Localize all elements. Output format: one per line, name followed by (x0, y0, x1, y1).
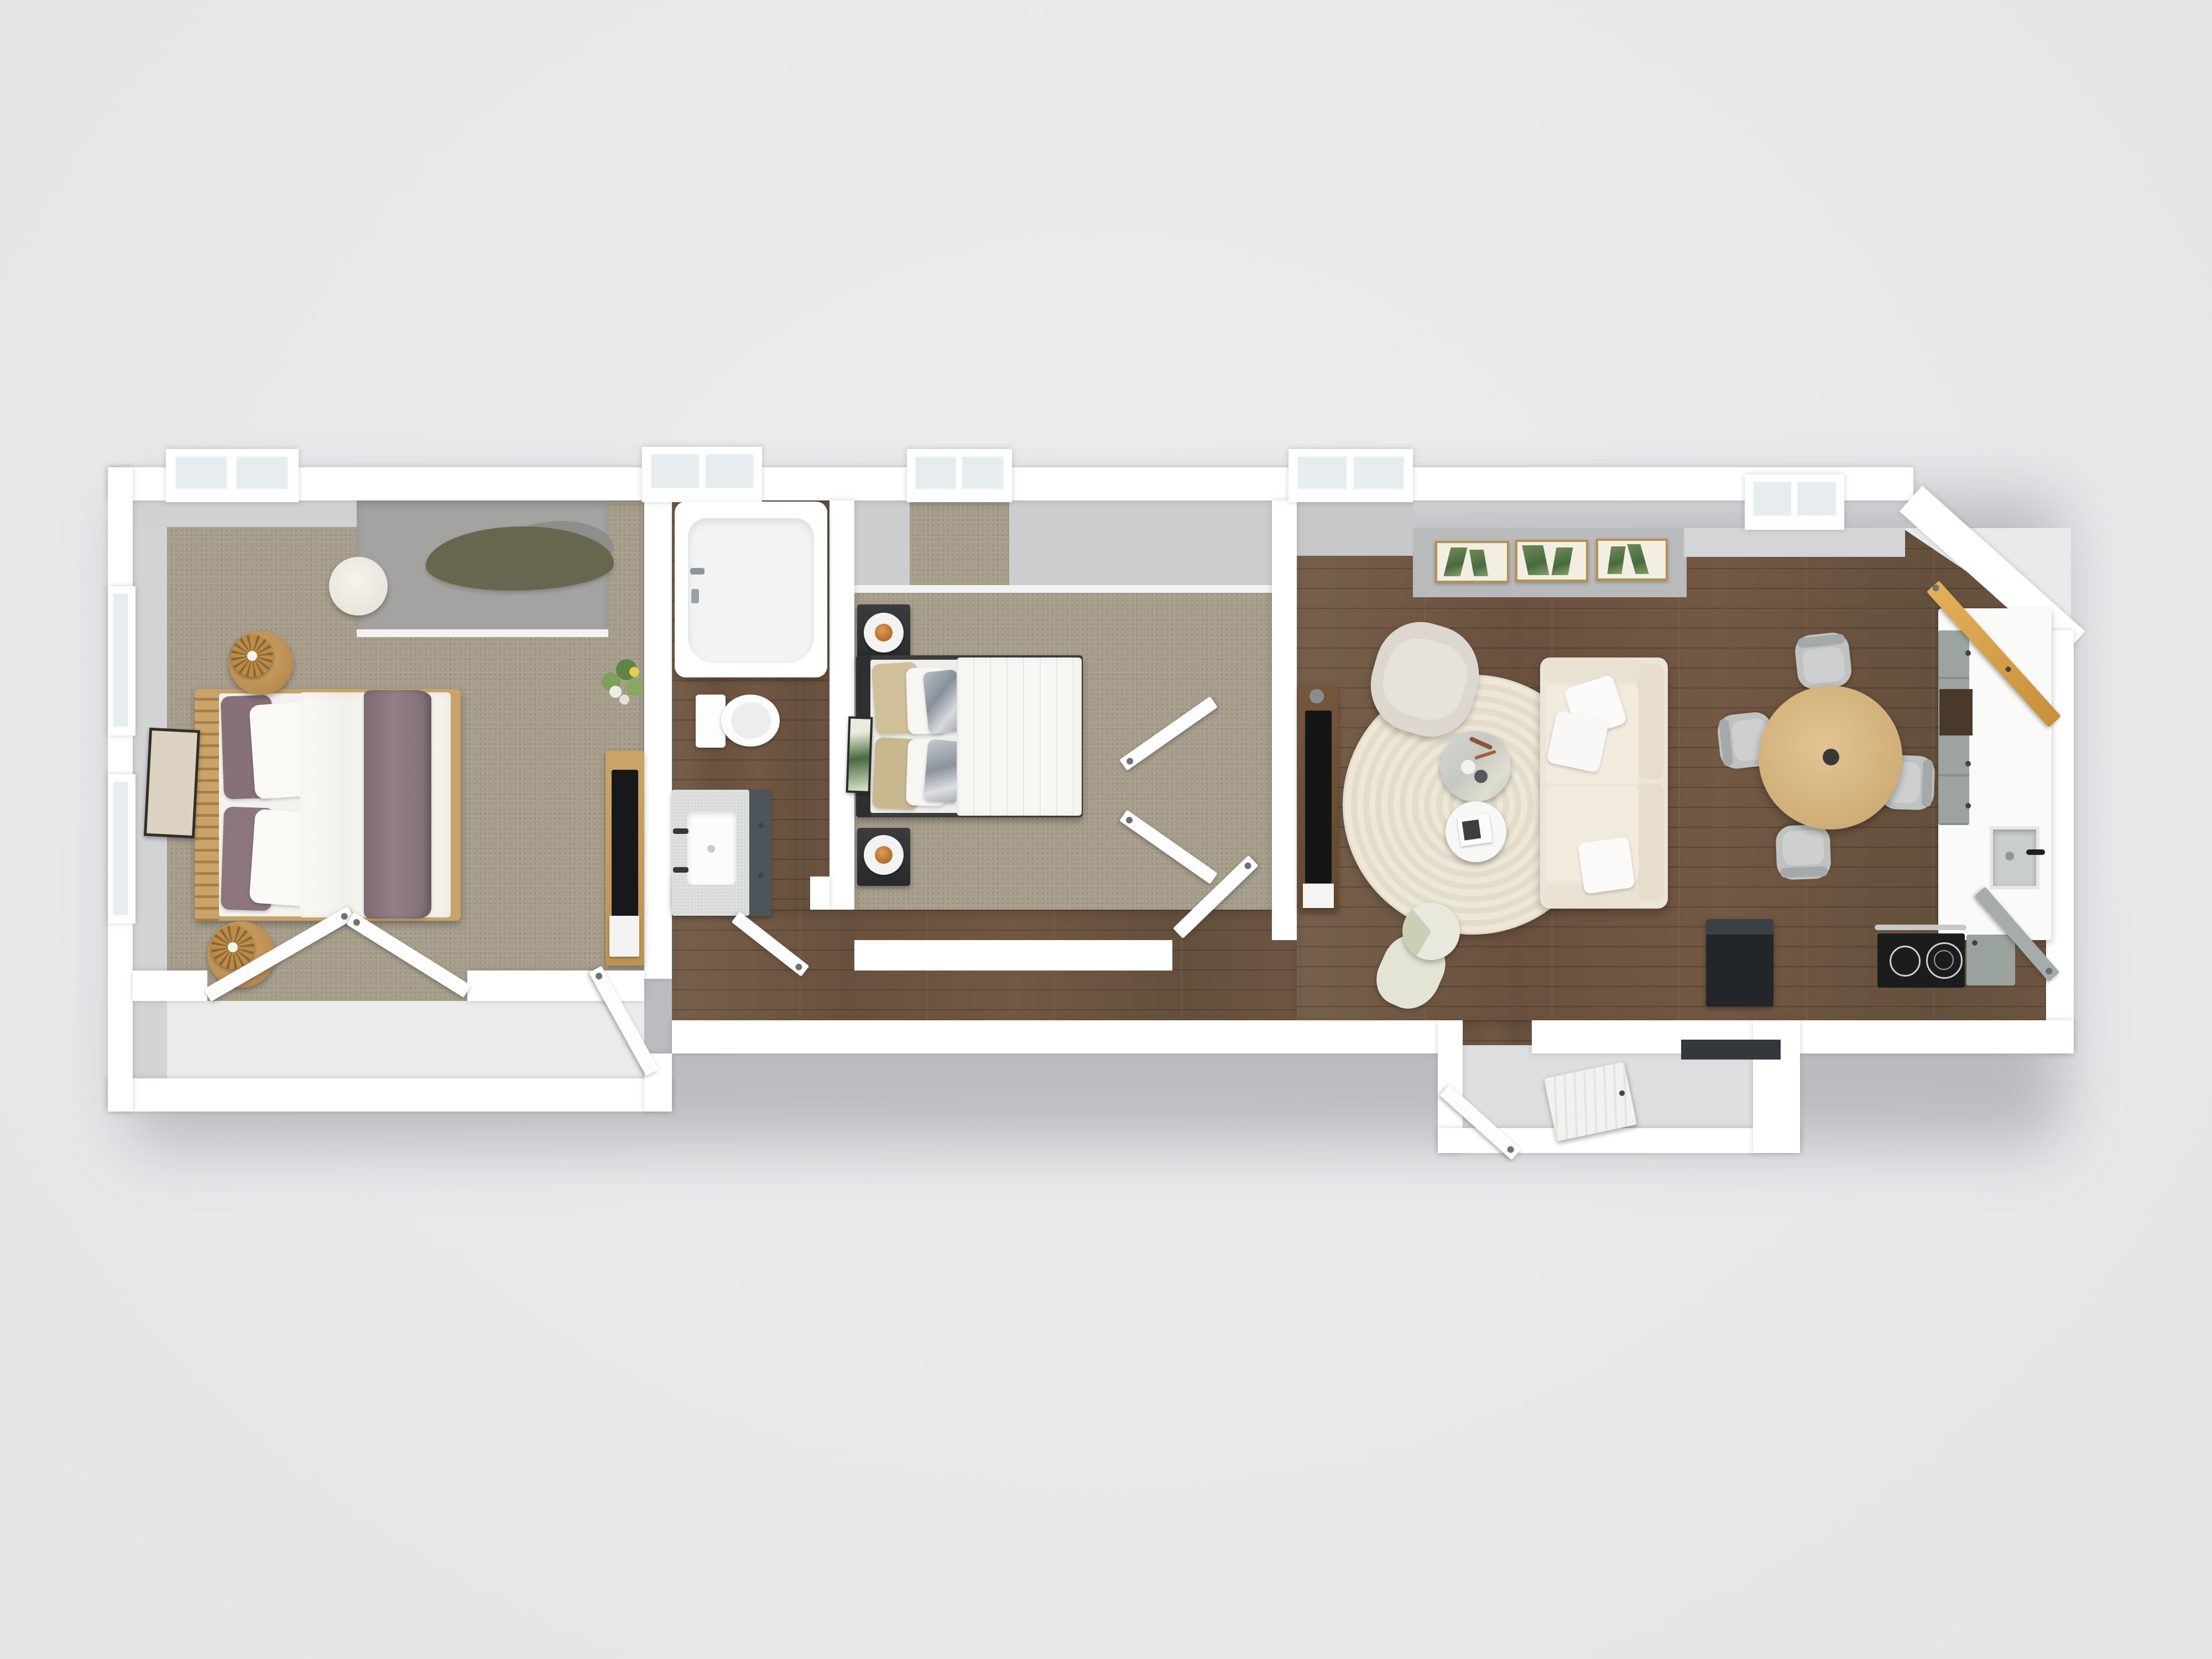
flower-white (619, 695, 629, 705)
burner (1890, 946, 1921, 977)
kitchen-top-wall-face (1684, 528, 1905, 557)
botanical-print (1596, 539, 1668, 581)
headboard-slats (195, 689, 219, 921)
window-pane (1751, 480, 1793, 518)
window-pane (111, 592, 130, 729)
magazine (609, 916, 639, 957)
window-pane (703, 452, 755, 490)
bedroom2-nook-baseboard (854, 585, 1272, 593)
cabinet-handle (758, 873, 764, 878)
leaf-art (1607, 546, 1625, 574)
dried-sprig (1474, 750, 1496, 760)
bath-faucet (690, 568, 705, 575)
cabinet-handle (1965, 761, 1971, 766)
bed-bedroom1 (195, 689, 461, 921)
leaf-art (1522, 545, 1549, 575)
tv-on-dresser (612, 770, 638, 920)
coffee-table-marble (1440, 731, 1511, 802)
living-bay-reveal (1297, 500, 1413, 556)
magazine-cover-photo (1462, 820, 1481, 841)
decor-vase (1310, 689, 1324, 703)
table-centerpiece (1823, 749, 1839, 765)
stove-cooktop (1877, 933, 1965, 988)
botanical-print (1515, 540, 1588, 582)
window-pane (174, 455, 229, 491)
cabinet-handle (1965, 650, 1971, 656)
leaning-art (144, 728, 200, 839)
rattan-lamp (211, 926, 254, 969)
window-bay-bedroom1 (166, 449, 299, 502)
wall-bottom-west (672, 1020, 1443, 1053)
wall-bottom-left-wing (108, 1078, 672, 1112)
quilted-duvet (957, 658, 1082, 816)
flower-white (609, 686, 622, 698)
window-bay-bedroom2 (907, 449, 1012, 502)
flower-yellow (629, 667, 639, 677)
window-bay-living (1288, 449, 1413, 502)
door-mat (1681, 1040, 1781, 1060)
bowl-lamp (864, 835, 904, 875)
wall-bathroom-bedroom2 (830, 500, 854, 910)
cabinet-handle (1965, 803, 1971, 808)
door-knob (1619, 1090, 1625, 1097)
nook-baseboard (357, 629, 608, 637)
leaf-art (1627, 544, 1648, 574)
throw-mauve (364, 690, 431, 919)
flower-leaf (626, 679, 643, 696)
window-bay-bathroom (642, 447, 762, 502)
dining-table (1759, 686, 1902, 830)
wall-bedroom2-bottom (854, 940, 1172, 971)
pillow-white (1546, 710, 1609, 773)
oven-panel (1939, 689, 1973, 735)
dining-chair (1793, 631, 1853, 691)
burner-inner (1934, 950, 1954, 970)
toilet-seat (731, 702, 771, 739)
kitchen-sink (1990, 826, 2039, 889)
stove-handle (1875, 925, 1966, 930)
wall-closet1-left (133, 971, 207, 1001)
bedroom2-wall-face-right (1009, 500, 1272, 592)
sofa (1540, 658, 1668, 909)
leaf-art (1552, 547, 1573, 575)
window-pane (960, 455, 1005, 491)
dried-sprig (1469, 736, 1493, 750)
vase-white (1461, 760, 1475, 774)
sink-drain (707, 845, 715, 853)
armchair-cushion (1376, 631, 1475, 728)
magazine (1457, 813, 1493, 847)
refrigerator (1706, 919, 1773, 1006)
window-left-lower (108, 774, 135, 924)
door-handle (2005, 665, 2012, 673)
sink-faucet (673, 828, 688, 834)
coffee-table-white (1446, 801, 1506, 862)
bed-bedroom2 (856, 655, 1083, 817)
window-pane (649, 452, 701, 490)
window-pane (1296, 455, 1349, 491)
cabinet-sage (1966, 935, 2015, 985)
window-bay-kitchen (1745, 474, 1844, 530)
rattan-lamp (231, 635, 273, 677)
wall-bedroom2-living (1272, 500, 1297, 940)
pouf-white (329, 557, 388, 615)
bath-spout (691, 589, 699, 603)
vanity (672, 790, 771, 916)
window-pane (1352, 455, 1406, 491)
wall-bedroom1-bathroom (644, 500, 672, 979)
bowl-lamp (864, 613, 904, 653)
cabinet-handle (1972, 940, 1978, 946)
flower-vase (597, 653, 647, 724)
bathtub (675, 502, 827, 677)
pouf-sage (1402, 902, 1460, 960)
window-pane (1795, 480, 1838, 518)
window-pane (234, 455, 290, 491)
tv-flatscreen (1305, 711, 1332, 883)
leaf-art (1469, 550, 1488, 576)
dining-chair (1775, 824, 1831, 880)
window-left-upper (108, 586, 135, 735)
bedroom1-top-wall-face (133, 500, 357, 527)
window-pane (111, 780, 130, 917)
leaning-botanical-art (846, 716, 873, 793)
refrigerator-top (1706, 919, 1773, 935)
sink-drain (2005, 852, 2014, 860)
floor-plan-scene (0, 0, 2212, 1659)
botanical-print (1435, 541, 1509, 583)
sofa-armrest (1545, 659, 1640, 682)
bedroom1-closet-floor (133, 1001, 644, 1078)
bedroom2-wall-face-left (854, 500, 910, 592)
pillow-white (1578, 837, 1635, 894)
wall-bottom-east (1532, 1020, 2074, 1053)
wall-bathroom-bottom-right (810, 877, 830, 910)
bathtub-basin (688, 518, 814, 663)
toilet (696, 691, 784, 751)
sofa-back-cushion (1637, 664, 1663, 779)
sink-faucet (673, 867, 688, 873)
cabinet-handle (758, 823, 764, 828)
sink-faucet-black (2026, 849, 2045, 855)
sofa-back-cushion (1637, 784, 1663, 901)
magazine (1303, 884, 1334, 908)
leaf-art (1444, 547, 1468, 576)
decor-sphere (1474, 770, 1488, 783)
window-pane (914, 455, 958, 491)
